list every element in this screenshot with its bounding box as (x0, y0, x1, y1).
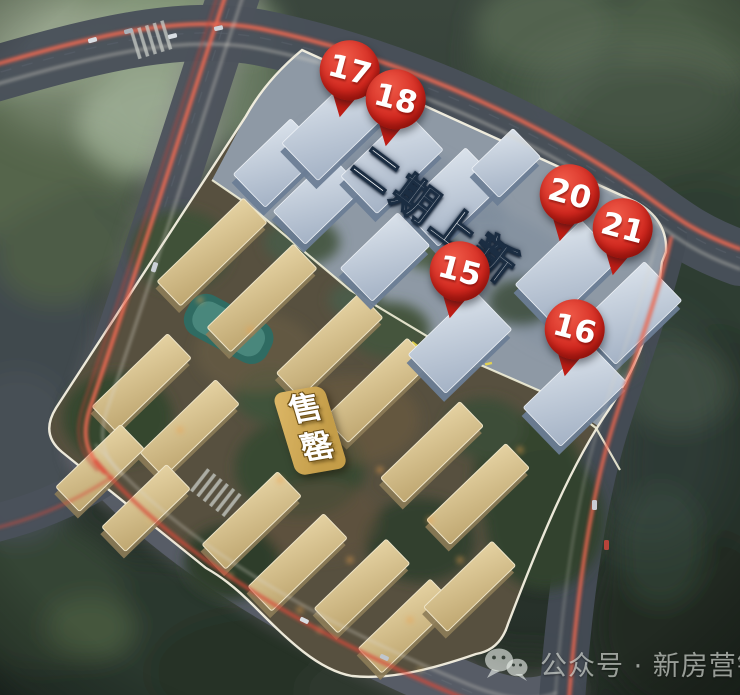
wechat-icon (484, 646, 530, 682)
masterplan-scene: 二期上新 17 18 20 21 15 16 售罄 公众号 · 新房营销部 (0, 0, 740, 695)
watermark-text: 公众号 · 新房营销部 (540, 644, 740, 683)
watermark: 公众号 · 新房营销部 (484, 644, 740, 683)
